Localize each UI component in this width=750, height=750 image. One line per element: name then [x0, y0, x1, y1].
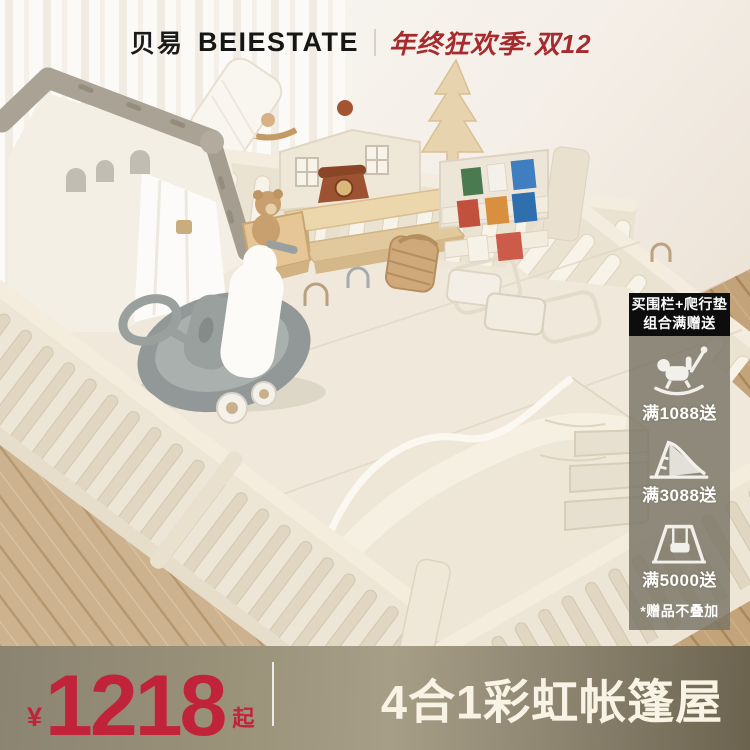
- rocking-horse-gift-icon: [646, 344, 712, 398]
- gift-banner-line1: 买围栏+爬行垫: [629, 295, 730, 314]
- gift-note: *赠品不叠加: [640, 601, 718, 621]
- price-suffix: 起: [232, 701, 254, 742]
- gift-tier-1-label: 满1088送: [642, 399, 717, 424]
- header: 贝易 BEIESTATE 年终狂欢季·双12: [130, 26, 592, 58]
- price-amount: 1218: [45, 671, 224, 742]
- small-ball: [337, 100, 353, 116]
- header-divider: [374, 29, 376, 56]
- product-name: 4合1彩虹帐篷屋: [374, 664, 730, 733]
- toddler-slide-gift-icon: [645, 434, 713, 480]
- gift-banner: 买围栏+爬行垫 组合满赠送: [629, 293, 730, 336]
- price: ¥ 1218 起: [27, 671, 254, 742]
- footer-divider: [272, 662, 274, 726]
- brand-chinese: 贝易: [130, 24, 184, 60]
- gift-banner-line2: 组合满赠送: [629, 314, 730, 333]
- currency-symbol: ¥: [27, 702, 42, 742]
- gift-tier-3-label: 满5000送: [642, 566, 717, 591]
- gift-tier-2-label: 满3088送: [642, 481, 717, 506]
- promo-tagline: 年终狂欢季·双12: [389, 24, 592, 61]
- wicker-basket: [385, 234, 440, 294]
- gift-tier-2: 满3088送: [642, 434, 717, 506]
- brand-english: BEIESTATE: [198, 27, 359, 58]
- gift-tier-1: 满1088送: [642, 344, 717, 424]
- product-card: 贝易 BEIESTATE 年终狂欢季·双12 买围栏+爬行垫 组合满赠送: [0, 0, 750, 750]
- price-bar: ¥ 1218 起 4合1彩虹帐篷屋: [0, 646, 750, 750]
- retro-telephone: [318, 164, 369, 203]
- gift-tier-3: 满5000送: [642, 515, 717, 591]
- storage-bin: [484, 293, 546, 336]
- gift-tier-list: 满1088送 满3088送: [629, 336, 730, 630]
- baby-swing-gift-icon: [648, 515, 710, 565]
- gift-promo-panel: 买围栏+爬行垫 组合满赠送 满1088送: [629, 293, 730, 630]
